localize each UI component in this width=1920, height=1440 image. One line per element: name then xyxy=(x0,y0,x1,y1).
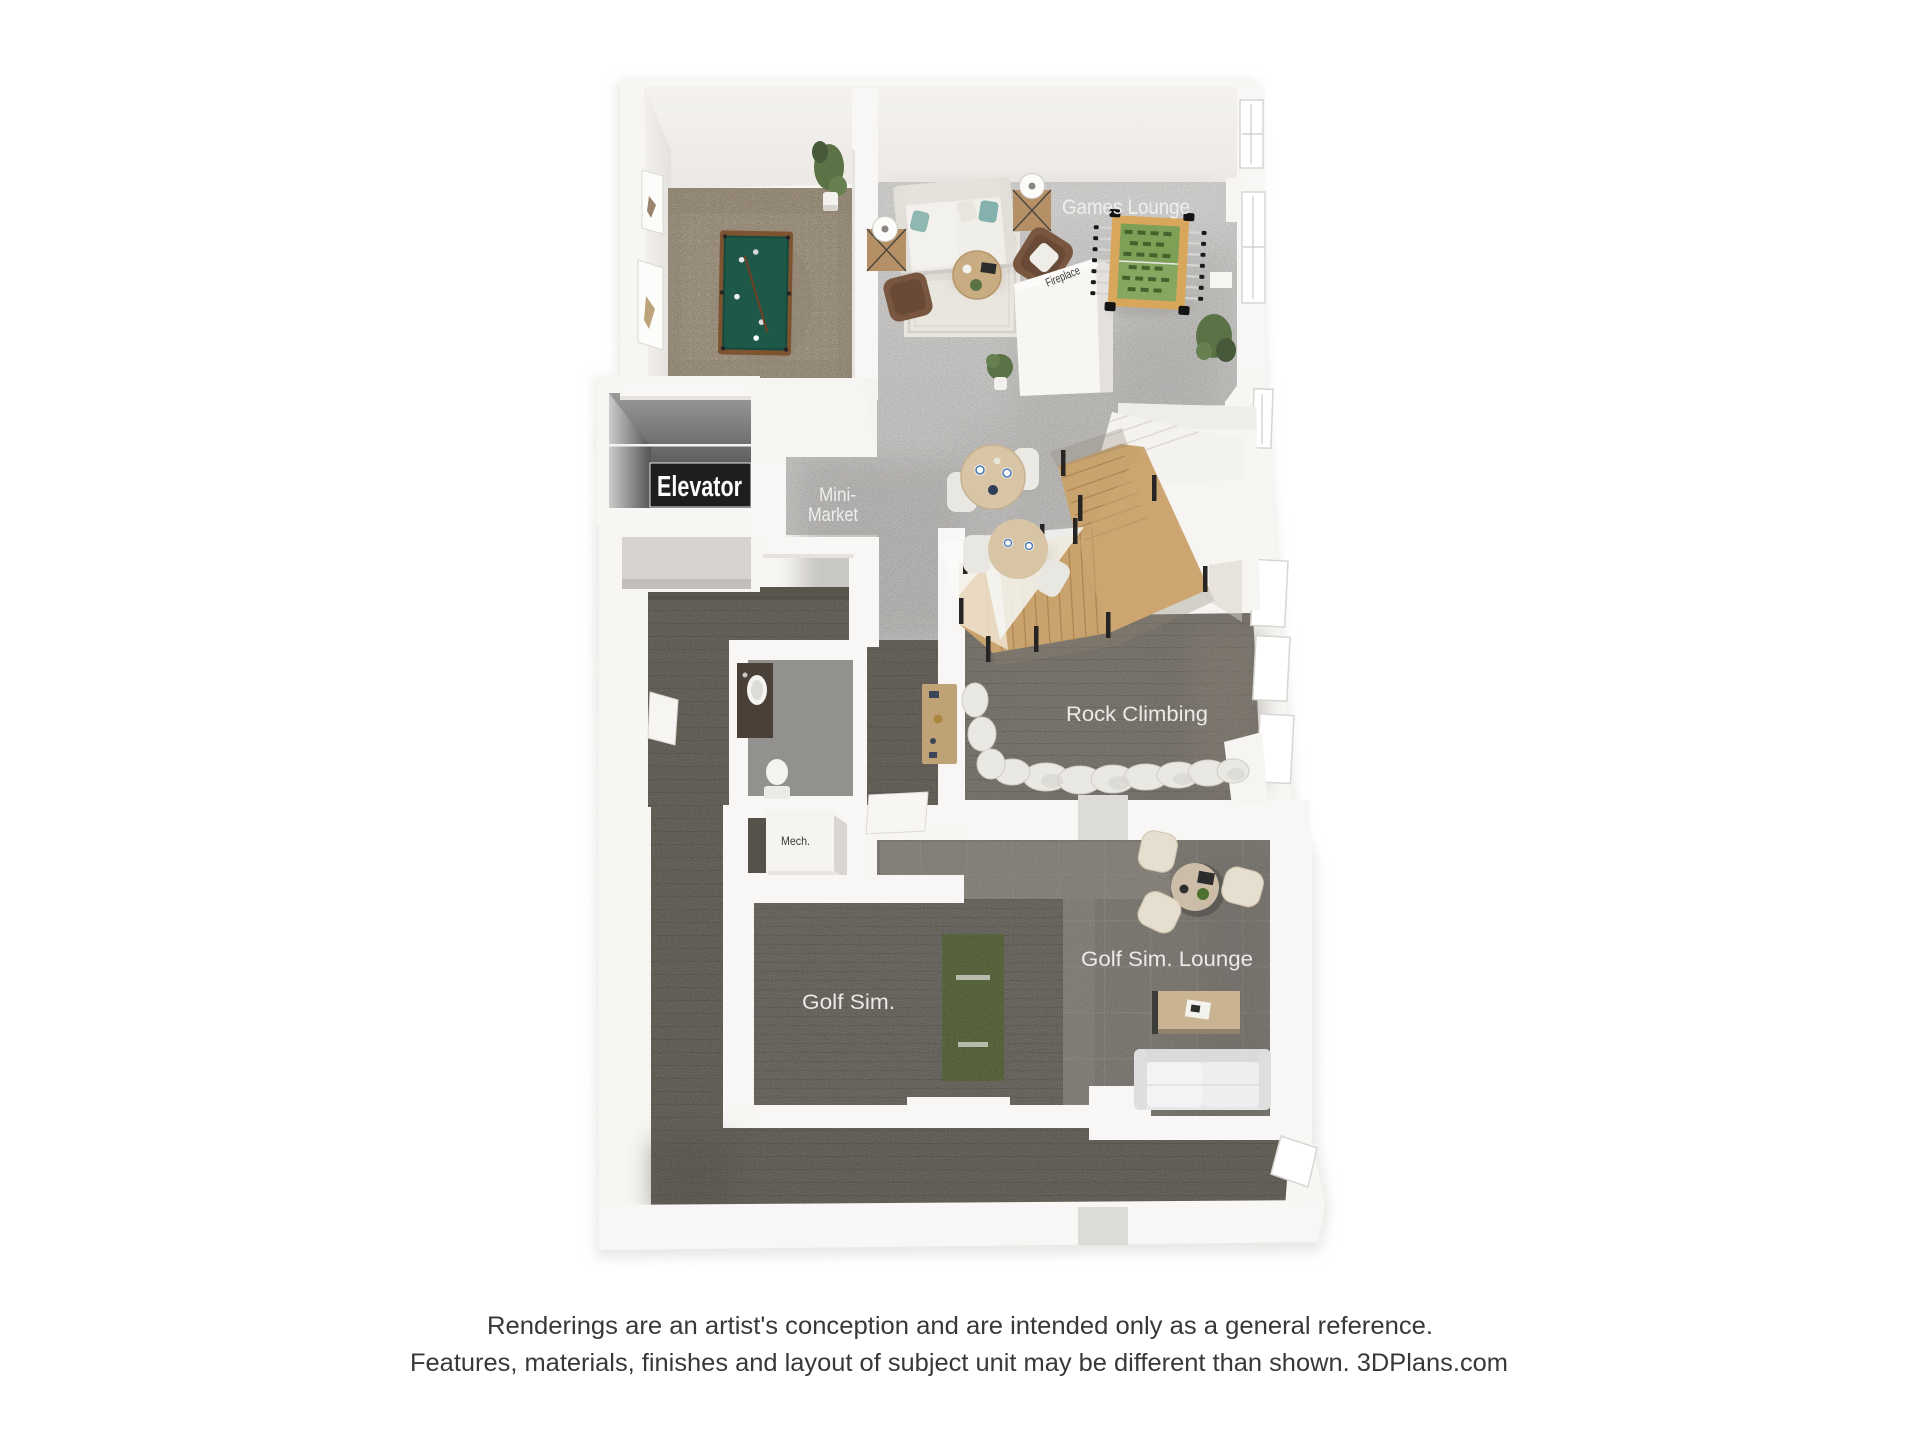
svg-text:Renderings are an artist's con: Renderings are an artist's conception an… xyxy=(487,1312,1433,1340)
svg-text:Elevator: Elevator xyxy=(657,471,742,503)
svg-text:Features, materials, finishes: Features, materials, finishes and layout… xyxy=(410,1349,1508,1377)
svg-text:Mini-: Mini- xyxy=(819,485,856,506)
svg-text:Golf Sim. Lounge: Golf Sim. Lounge xyxy=(1081,948,1253,971)
svg-text:Market: Market xyxy=(808,505,859,526)
svg-text:Golf Sim.: Golf Sim. xyxy=(802,991,895,1014)
svg-text:Rock Climbing: Rock Climbing xyxy=(1066,703,1208,726)
svg-text:Games Lounge: Games Lounge xyxy=(1062,196,1190,219)
svg-text:Mech.: Mech. xyxy=(781,834,810,848)
